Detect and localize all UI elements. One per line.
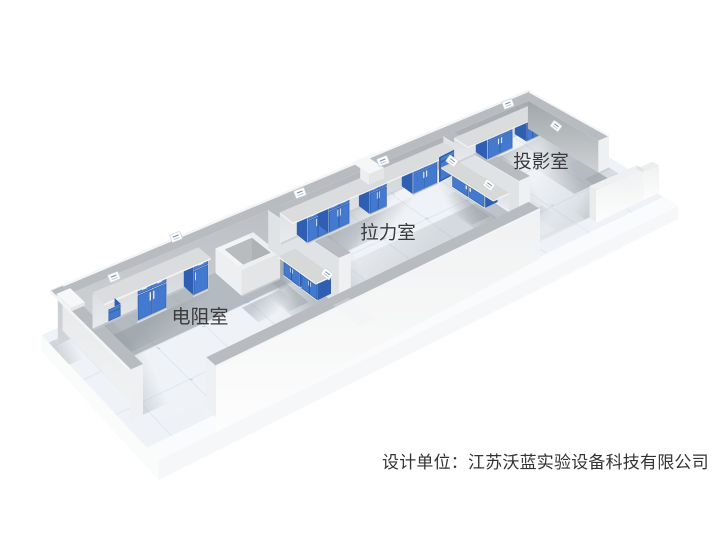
svg-text:投影室: 投影室 xyxy=(513,151,569,172)
svg-text:电阻室: 电阻室 xyxy=(171,306,228,328)
svg-text:设计单位：江苏沃蓝实验设备科技有限公司: 设计单位：江苏沃蓝实验设备科技有限公司 xyxy=(382,453,709,472)
svg-text:拉力室: 拉力室 xyxy=(360,222,416,243)
